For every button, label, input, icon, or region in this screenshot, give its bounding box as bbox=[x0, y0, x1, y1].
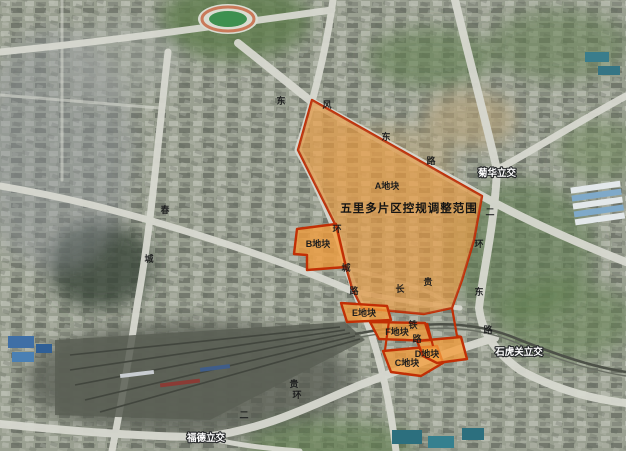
road-name-char-1: 风 bbox=[322, 100, 331, 110]
road-name-char-15: 铁 bbox=[408, 319, 417, 330]
satellite-planning-map: 东风东路二环东路春城环城路长贵铁路贵环二 A地块B地块C地块D地块E地块F地块 … bbox=[0, 0, 626, 451]
road-name-char-14: 贵 bbox=[423, 276, 432, 287]
stadium bbox=[198, 4, 258, 34]
road-name-char-19: 二 bbox=[239, 410, 248, 420]
road-name-char-18: 环 bbox=[292, 390, 301, 400]
road-name-char-0: 东 bbox=[276, 95, 285, 106]
parcel-label-b: B地块 bbox=[306, 238, 331, 249]
road-name-char-7: 路 bbox=[483, 324, 493, 335]
parcel-label-a: A地块 bbox=[375, 180, 400, 191]
road-name-char-5: 环 bbox=[474, 239, 483, 249]
parcel-label-e: E地块 bbox=[352, 307, 377, 318]
road-name-char-6: 东 bbox=[474, 286, 483, 297]
parcel-label-f: F地块 bbox=[385, 326, 409, 337]
map-title: 五里多片区控规调整范围 bbox=[340, 201, 478, 215]
interchange-label-1: 石虎关立交 bbox=[494, 346, 543, 358]
interchange-label-0: 菊华立交 bbox=[477, 167, 517, 179]
road-name-char-12: 路 bbox=[349, 285, 359, 296]
parcel-label-d: D地块 bbox=[415, 348, 440, 359]
road-name-char-10: 环 bbox=[332, 224, 341, 234]
road-name-char-16: 路 bbox=[412, 333, 422, 344]
road-name-char-17: 贵 bbox=[289, 378, 298, 389]
road-name-char-13: 长 bbox=[395, 283, 405, 294]
road-name-char-9: 城 bbox=[144, 253, 153, 264]
road-name-char-8: 春 bbox=[159, 204, 170, 215]
road-name-char-4: 二 bbox=[485, 207, 494, 217]
interchange-label-2: 福德立交 bbox=[186, 432, 226, 444]
road-name-char-11: 城 bbox=[341, 262, 350, 273]
map-canvas: 东风东路二环东路春城环城路长贵铁路贵环二 A地块B地块C地块D地块E地块F地块 … bbox=[0, 0, 626, 451]
road-name-char-2: 东 bbox=[381, 131, 390, 142]
road-name-char-3: 路 bbox=[426, 155, 436, 166]
